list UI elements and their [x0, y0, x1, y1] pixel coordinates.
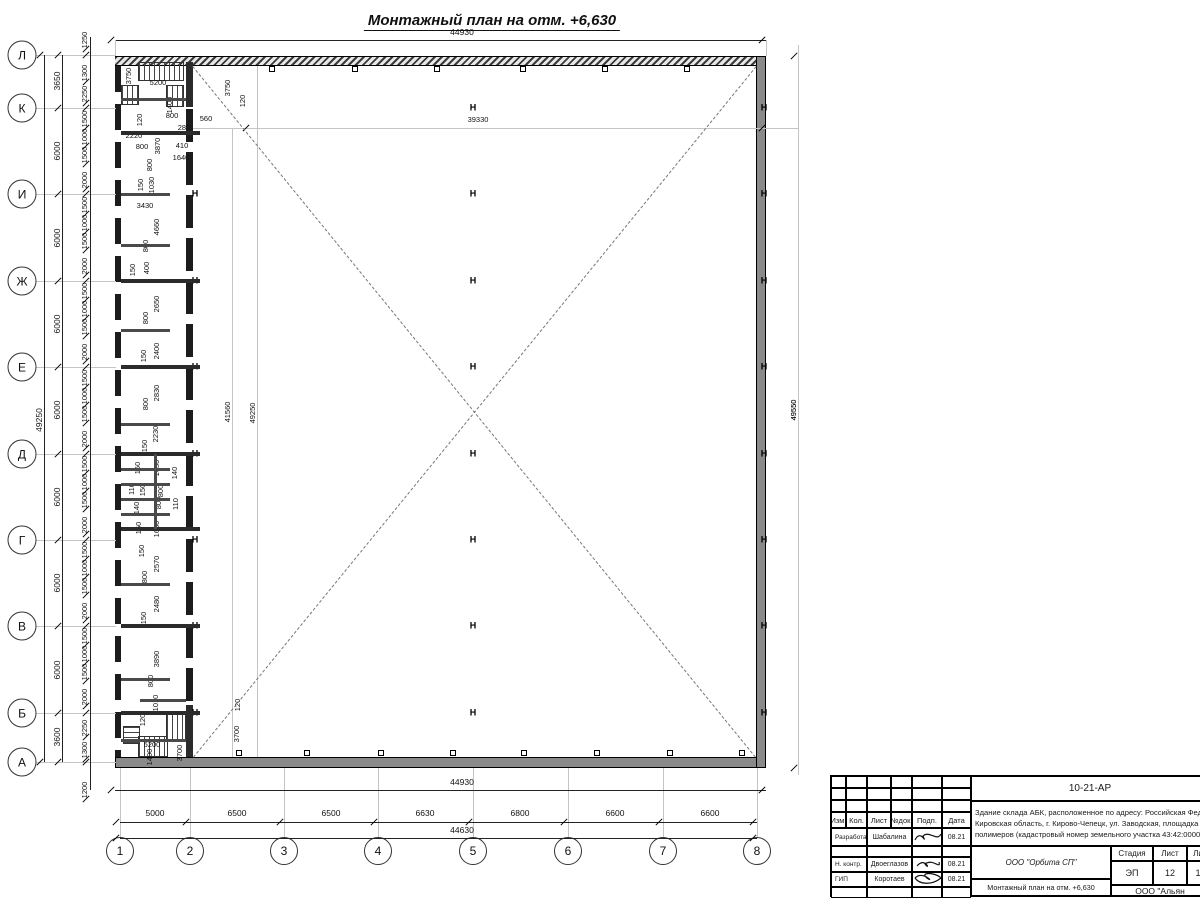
dim-tick	[790, 764, 797, 771]
titleblock-stage-value: ЭП	[1111, 861, 1153, 885]
row-extension-line	[36, 540, 116, 541]
bottom-overall-dim-line	[120, 838, 757, 839]
dim-label: 800	[141, 571, 149, 584]
right-dim-line	[798, 45, 799, 775]
steel-column-mark: H	[470, 104, 477, 113]
dim-label: 6000	[53, 488, 61, 507]
revision-cell	[942, 788, 971, 800]
wall-post-mark	[520, 66, 526, 72]
titleblock-name-cell: Двоеглазов	[867, 857, 912, 872]
top-dim-line	[115, 40, 766, 41]
description-line: Здание склада АБК, расположенное по адре…	[975, 807, 1200, 818]
axis-bubble-col-5: 5	[459, 837, 487, 865]
titleblock-stage-value: 1	[1187, 861, 1200, 885]
steel-column-mark: H	[761, 536, 768, 545]
partition-wall	[121, 678, 170, 681]
wall-post-mark	[378, 750, 384, 756]
revision-cell	[942, 800, 971, 812]
steel-column-mark: H	[470, 622, 477, 631]
titleblock-date-cell	[942, 887, 971, 898]
revision-cell	[942, 776, 971, 788]
dim-label: 150	[140, 612, 148, 625]
dim-label: 3600	[53, 728, 61, 747]
dim-label: 2230	[152, 426, 160, 443]
dim-label: 2000	[81, 517, 89, 534]
dim-label: 49250	[249, 403, 257, 424]
dim-label: 6000	[53, 661, 61, 680]
top-wall	[115, 56, 766, 66]
title-block: Изм.Кол.Лист№док.Подп.ДатаРазработалШаба…	[830, 775, 1200, 897]
axis-bubble-row-А: А	[8, 748, 37, 777]
steel-column-mark: H	[761, 190, 768, 199]
revision-cell	[912, 776, 942, 788]
dim-label: 44930	[450, 778, 474, 786]
titleblock-org: ООО "Орбита СП"	[971, 846, 1111, 879]
dim-label: 800	[142, 312, 150, 325]
steel-column-mark: H	[761, 363, 768, 372]
dim-label: 2400	[153, 343, 161, 360]
floor-plan-canvas: Монтажный план на отм. +6,630 Изм.Кол.Ли…	[0, 0, 1200, 900]
dim-label: 1000	[81, 560, 89, 577]
partition-wall	[121, 583, 170, 586]
axis-bubble-col-1: 1	[106, 837, 134, 865]
wall-post-mark	[304, 750, 310, 756]
col-extension-line	[120, 768, 121, 840]
dim-label: 1010	[152, 695, 160, 712]
titleblock-role-cell	[831, 887, 867, 898]
titleblock-role-cell	[831, 846, 867, 857]
partition-stub	[186, 279, 200, 283]
col-extension-line	[284, 768, 285, 840]
dim-tick	[112, 818, 119, 825]
dim-label: 49550	[790, 400, 798, 421]
dim-label: 150	[141, 440, 149, 453]
dim-label: 1000	[81, 474, 89, 491]
dim-label: 2250	[81, 86, 89, 103]
axis-bubble-row-И: И	[8, 180, 37, 209]
row-extension-line	[36, 367, 116, 368]
dim-label: 1500	[81, 628, 89, 645]
axis-bubble-row-Г: Г	[8, 526, 37, 555]
col-extension-line	[190, 768, 191, 840]
interior-dim-49250	[257, 66, 258, 757]
titleblock-stage-header: Ли	[1187, 846, 1200, 861]
partition-wall	[121, 329, 170, 332]
dim-label: 3750	[125, 68, 133, 85]
bottom-wall-dim-line	[115, 790, 766, 791]
dim-label: 3870	[154, 138, 162, 155]
col-extension-line	[663, 768, 664, 840]
titleblock-role-cell: Н. контр.	[831, 857, 867, 872]
partition-stub	[186, 711, 200, 715]
revision-cell	[846, 788, 867, 800]
dim-label: 6600	[701, 809, 720, 817]
revision-cell	[912, 788, 942, 800]
partition-wall	[121, 483, 170, 486]
wall-post-mark	[236, 750, 242, 756]
dim-label: 6000	[53, 574, 61, 593]
dim-label: 3750	[224, 80, 232, 97]
dim-label: 2000	[81, 431, 89, 448]
dim-label: 1200	[81, 782, 89, 799]
steel-column-mark: H	[470, 277, 477, 286]
dim-label: 800	[146, 159, 154, 172]
top-dim-ext	[766, 40, 767, 56]
partition-stub	[186, 452, 200, 456]
dim-label: 1000	[81, 646, 89, 663]
dim-label: 150	[138, 545, 146, 558]
row-extension-line	[36, 108, 116, 109]
titleblock-name-cell: Шабалина	[867, 828, 912, 846]
dim-tick	[107, 36, 114, 43]
axis-bubble-row-Ж: Ж	[8, 267, 37, 296]
row-extension-line	[36, 55, 116, 56]
titleblock-header-cell: Дата	[942, 812, 971, 828]
revision-cell	[831, 800, 846, 812]
axis-bubble-row-Е: Е	[8, 353, 37, 382]
partition-wall	[121, 365, 186, 369]
dim-label: 800	[157, 485, 165, 498]
dim-label: 400	[143, 262, 151, 275]
dim-label: 3430	[137, 202, 154, 210]
dim-label: 2000	[81, 172, 89, 189]
steel-column-mark: H	[761, 104, 768, 113]
wall-post-mark	[684, 66, 690, 72]
axis-bubble-col-6: 6	[554, 837, 582, 865]
titleblock-company2: ООО "Альян	[1111, 885, 1200, 896]
row-extension-line	[36, 762, 116, 763]
revision-cell	[846, 800, 867, 812]
dim-label: 560	[200, 115, 213, 123]
dim-label: 39330	[468, 116, 489, 124]
partition-wall	[121, 513, 170, 516]
dim-label: 2000	[81, 344, 89, 361]
dim-label: 1500	[81, 664, 89, 681]
dim-label: 800	[142, 398, 150, 411]
dim-label: 6000	[53, 315, 61, 334]
partition-wall	[121, 98, 186, 101]
partition-wall	[121, 498, 170, 501]
revision-cell	[891, 776, 912, 788]
drawing-sheet: { "drawing": { "title": "Монтажный план …	[0, 0, 1200, 900]
dim-label: 1500	[81, 542, 89, 559]
dim-label: 6800	[511, 809, 530, 817]
dim-label: 150	[129, 264, 137, 277]
signature-scribbles	[911, 826, 945, 888]
dim-label: 1500	[81, 492, 89, 509]
steel-column-mark: H	[470, 363, 477, 372]
dim-label: 3700	[233, 726, 241, 743]
dim-label: 1300	[81, 65, 89, 82]
titleblock-role-cell: Разработал	[831, 828, 867, 846]
interior-dim-41560	[232, 128, 233, 757]
partition-stub	[186, 527, 200, 531]
revision-cell	[891, 800, 912, 812]
partition-wall	[121, 624, 186, 628]
dim-label: 1640	[173, 154, 190, 162]
axis-bubble-col-3: 3	[270, 837, 298, 865]
dim-label: 6500	[322, 809, 341, 817]
dim-label: 1500	[81, 233, 89, 250]
dim-label: 120	[239, 95, 247, 108]
partition-wall	[121, 739, 186, 742]
dim-label: 150	[140, 350, 148, 363]
dim-label: 41560	[224, 402, 232, 423]
interior-dim-39330	[193, 128, 798, 129]
wall-post-mark	[269, 66, 275, 72]
right-wall	[756, 56, 766, 768]
dim-label: 6630	[416, 809, 435, 817]
description-line: Кировская область, г. Кирово-Чепецк, ул.…	[975, 818, 1200, 829]
axis-bubble-row-Д: Д	[8, 440, 37, 469]
dim-tick	[790, 52, 797, 59]
dim-label: 1030	[148, 177, 156, 194]
dim-label: 6000	[53, 401, 61, 420]
titleblock-header-cell: Лист	[867, 812, 891, 828]
dim-label: 800	[147, 675, 155, 688]
dim-label: 3890	[153, 651, 161, 668]
steel-column-mark: H	[761, 277, 768, 286]
wall-post-mark	[602, 66, 608, 72]
description-line: полимеров (кадастровый номер земельного …	[975, 829, 1200, 840]
dim-label: 5000	[146, 809, 165, 817]
dim-label: 3700	[176, 745, 184, 762]
partition-wall	[121, 131, 186, 135]
titleblock-date-cell: 08.21	[942, 828, 971, 846]
titleblock-doc-code: 10-21-АР	[971, 776, 1200, 801]
titleblock-date-cell: 08.21	[942, 872, 971, 887]
dim-label: 4660	[153, 219, 161, 236]
dim-label: 1300	[81, 742, 89, 759]
wall-post-mark	[594, 750, 600, 756]
dim-label: 6000	[53, 142, 61, 161]
revision-cell	[867, 788, 891, 800]
row-extension-line	[36, 626, 116, 627]
col-extension-line	[568, 768, 569, 840]
titleblock-date-cell: 08.21	[942, 857, 971, 872]
dim-label: 49250	[35, 408, 43, 432]
dim-label: 1400	[146, 749, 154, 766]
axis-bubble-row-Б: Б	[8, 699, 37, 728]
titleblock-sheet-title: Монтажный план на отм. +6,630	[971, 879, 1111, 896]
titleblock-name-cell	[867, 846, 912, 857]
axis-bubble-row-Л: Л	[8, 41, 37, 70]
inner-hall-wall	[186, 66, 193, 757]
titleblock-description: Здание склада АБК, расположенное по адре…	[971, 801, 1200, 846]
wall-post-mark	[450, 750, 456, 756]
steel-column-mark: H	[192, 190, 199, 199]
axis-bubble-row-К: К	[8, 94, 37, 123]
dim-label: 44930	[450, 28, 474, 36]
col-extension-line	[378, 768, 379, 840]
dim-label: 120	[136, 114, 144, 127]
dim-label: 1500	[81, 147, 89, 164]
row-extension-line	[36, 281, 116, 282]
partition-wall	[121, 244, 170, 247]
titleblock-name-cell	[867, 887, 912, 898]
dim-label: 1500	[81, 197, 89, 214]
dim-label: 2570	[153, 556, 161, 573]
dim-label: 6600	[606, 809, 625, 817]
steel-column-mark: H	[470, 190, 477, 199]
left-total-dim-line	[44, 55, 45, 762]
revision-cell	[867, 800, 891, 812]
dim-tick	[107, 786, 114, 793]
revision-cell	[846, 776, 867, 788]
axis-bubble-row-В: В	[8, 612, 37, 641]
dim-label: 1000	[81, 215, 89, 232]
dim-label: 1500	[81, 456, 89, 473]
wall-post-mark	[739, 750, 745, 756]
partition-wall	[121, 468, 170, 471]
dim-label: 1500	[81, 406, 89, 423]
revision-cell	[831, 776, 846, 788]
titleblock-header-cell: №док.	[891, 812, 912, 828]
dim-label: 2830	[153, 385, 161, 402]
titleblock-stage-value: 12	[1153, 861, 1187, 885]
dim-label: 2250	[81, 720, 89, 737]
dim-label: 2480	[153, 596, 161, 613]
drawing-title: Монтажный план на отм. +6,630	[364, 12, 620, 31]
dim-label: 800	[166, 112, 179, 120]
wall-post-mark	[434, 66, 440, 72]
partition-wall	[121, 711, 186, 715]
titleblock-stage-header: Стадия	[1111, 846, 1153, 861]
partition-stub	[186, 624, 200, 628]
wall-post-mark	[352, 66, 358, 72]
stair-flight	[166, 714, 186, 742]
titleblock-role-cell: ГИП	[831, 872, 867, 887]
stair-flight	[121, 85, 139, 105]
titleblock-header-cell: Изм.	[831, 812, 846, 828]
partition-stub	[186, 365, 200, 369]
left-coarse-dim-line	[62, 55, 63, 762]
dim-label: 120	[139, 714, 147, 727]
dim-label: 44630	[450, 826, 474, 834]
partition-stub	[186, 131, 200, 135]
dim-label: 1000	[81, 129, 89, 146]
axis-bubble-col-2: 2	[176, 837, 204, 865]
inner-wall-top-solid	[186, 62, 193, 107]
axis-bubble-col-7: 7	[649, 837, 677, 865]
dim-label: 1500	[81, 111, 89, 128]
row-extension-line	[36, 194, 116, 195]
revision-cell	[867, 776, 891, 788]
titleblock-header-cell: Кол.	[846, 812, 867, 828]
dim-label: 1500	[81, 283, 89, 300]
wall-post-mark	[521, 750, 527, 756]
left-fine-dim-line	[90, 37, 91, 790]
steel-column-mark: H	[192, 536, 199, 545]
titleblock-date-cell	[942, 846, 971, 857]
revision-cell	[891, 788, 912, 800]
steel-column-mark: H	[761, 709, 768, 718]
top-dim-ext	[115, 40, 116, 56]
wall-post-mark	[667, 750, 673, 756]
axis-bubble-col-8: 8	[743, 837, 771, 865]
revision-cell	[831, 788, 846, 800]
dim-label: 140	[171, 467, 179, 480]
steel-column-mark: H	[470, 450, 477, 459]
steel-column-mark: H	[470, 536, 477, 545]
bottom-wall	[115, 757, 766, 768]
partition-wall	[140, 699, 186, 702]
partition-wall	[154, 454, 157, 529]
col-extension-line	[757, 768, 758, 840]
dim-label: 1250	[81, 32, 89, 49]
steel-column-mark: H	[761, 622, 768, 631]
steel-column-mark: H	[470, 709, 477, 718]
dim-label: 6500	[228, 809, 247, 817]
dim-label: 150	[137, 179, 145, 192]
steel-column-mark: H	[761, 450, 768, 459]
dim-label: 800	[136, 143, 149, 151]
dim-label: 2000	[81, 603, 89, 620]
dim-label: 1000	[81, 388, 89, 405]
partition-wall	[121, 279, 186, 283]
revision-cell	[912, 800, 942, 812]
bottom-segment-dim-line	[120, 822, 757, 823]
dim-label: 410	[176, 142, 189, 150]
row-extension-line	[36, 713, 116, 714]
dim-label: 2000	[81, 258, 89, 275]
dim-label: 1500	[81, 370, 89, 387]
dim-label: 5200	[150, 79, 167, 87]
axis-bubble-col-4: 4	[364, 837, 392, 865]
dim-label: 6000	[53, 229, 61, 248]
dim-label: 2000	[81, 689, 89, 706]
dim-label: 3650	[53, 72, 61, 91]
partition-wall	[121, 193, 170, 196]
titleblock-signature-cell	[912, 887, 942, 898]
titleblock-name-cell: Коротаев	[867, 872, 912, 887]
dim-label: 2650	[153, 296, 161, 313]
titleblock-stage-header: Лист	[1153, 846, 1187, 861]
dim-label: 110	[172, 498, 180, 510]
partition-wall	[121, 423, 170, 426]
dim-label: 1000	[81, 301, 89, 318]
row-extension-line	[36, 454, 116, 455]
dim-label: 1500	[81, 319, 89, 336]
left-outer-wall	[115, 66, 121, 757]
dim-label: 1500	[81, 578, 89, 595]
